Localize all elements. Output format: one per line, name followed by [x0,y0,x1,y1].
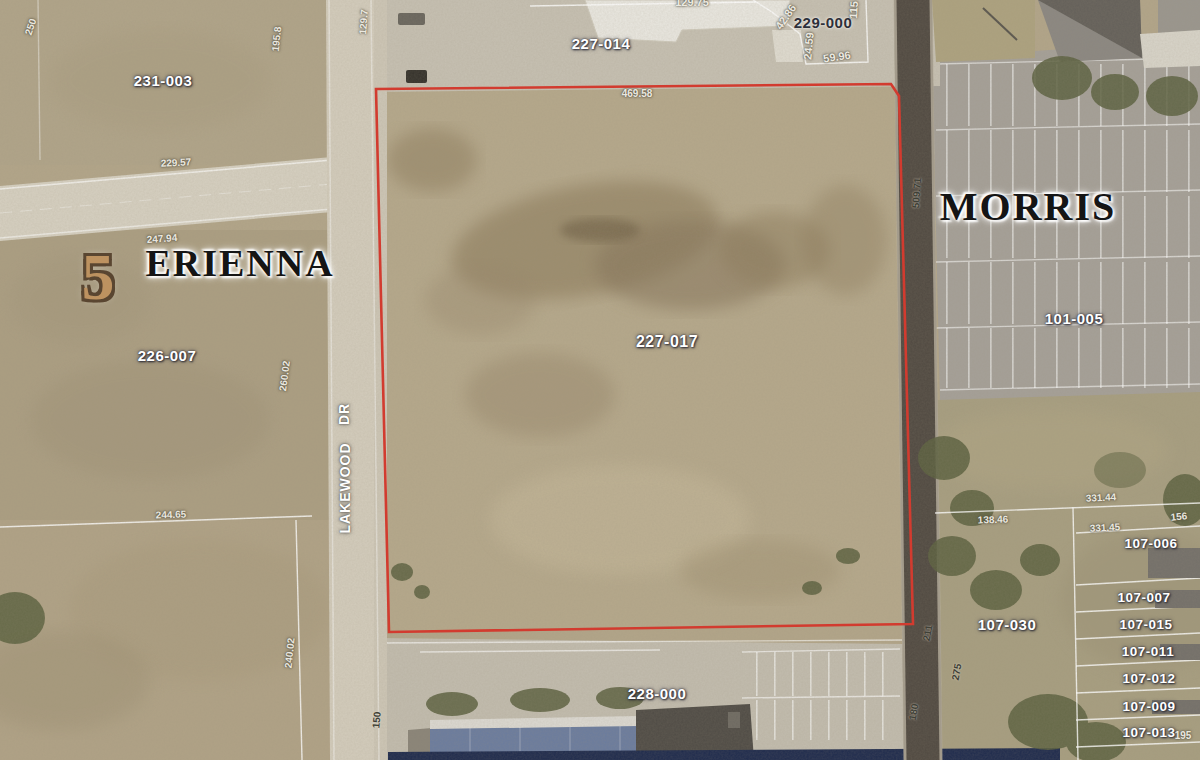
dimension-label: 229.57 [160,157,191,169]
parcel-label-229-000: 229-000 [794,15,853,30]
dimension-label: 247.94 [146,233,177,245]
dimension-label: 331.44 [1085,492,1116,504]
parcel-map-viewport[interactable]: ERIENNA MORRIS 5 LAKEWOOD DR 231-003 227… [0,0,1200,760]
road-label-dr: DR [337,403,351,425]
parcel-label-107-015: 107-015 [1119,618,1172,632]
parcel-label-231-003: 231-003 [134,73,193,88]
dimension-label: 509.71 [911,177,923,208]
parcel-label-226-007: 226-007 [138,348,197,363]
parcel-label-227-014: 227-014 [572,36,631,51]
parcel-label-107-009: 107-009 [1122,700,1175,714]
parcel-label-107-011: 107-011 [1122,645,1174,659]
parcel-label-107-007: 107-007 [1117,591,1170,605]
aerial-basemap [0,0,1200,760]
parcel-label-228-000: 228-000 [628,686,687,701]
road-label-lakewood: LAKEWOOD [338,442,352,533]
parcel-label-107-006: 107-006 [1124,537,1177,551]
municipality-label-morris: MORRIS [940,187,1116,227]
municipality-label-erienna: ERIENNA [145,244,334,282]
dimension-label: 195 [1175,731,1192,741]
dimension-label: 115 [848,1,860,19]
parcel-label-107-012: 107-012 [1122,672,1175,686]
parcel-label-107-013: 107-013 [1122,726,1175,740]
dimension-label: 156 [1170,511,1188,523]
section-number-label: 5 [82,244,115,310]
dimension-label: 138.46 [978,514,1009,525]
dimension-label: 331.45 [1089,522,1120,534]
dimension-label: 129.75 [675,0,709,8]
dimension-label: 469.58 [622,89,653,99]
parcel-label-227-017: 227-017 [636,334,698,350]
parcel-label-101-005: 101-005 [1045,311,1104,326]
dimension-label: 150 [371,711,382,728]
dimension-label: 244.65 [156,509,187,520]
parcel-label-107-030: 107-030 [978,617,1037,632]
